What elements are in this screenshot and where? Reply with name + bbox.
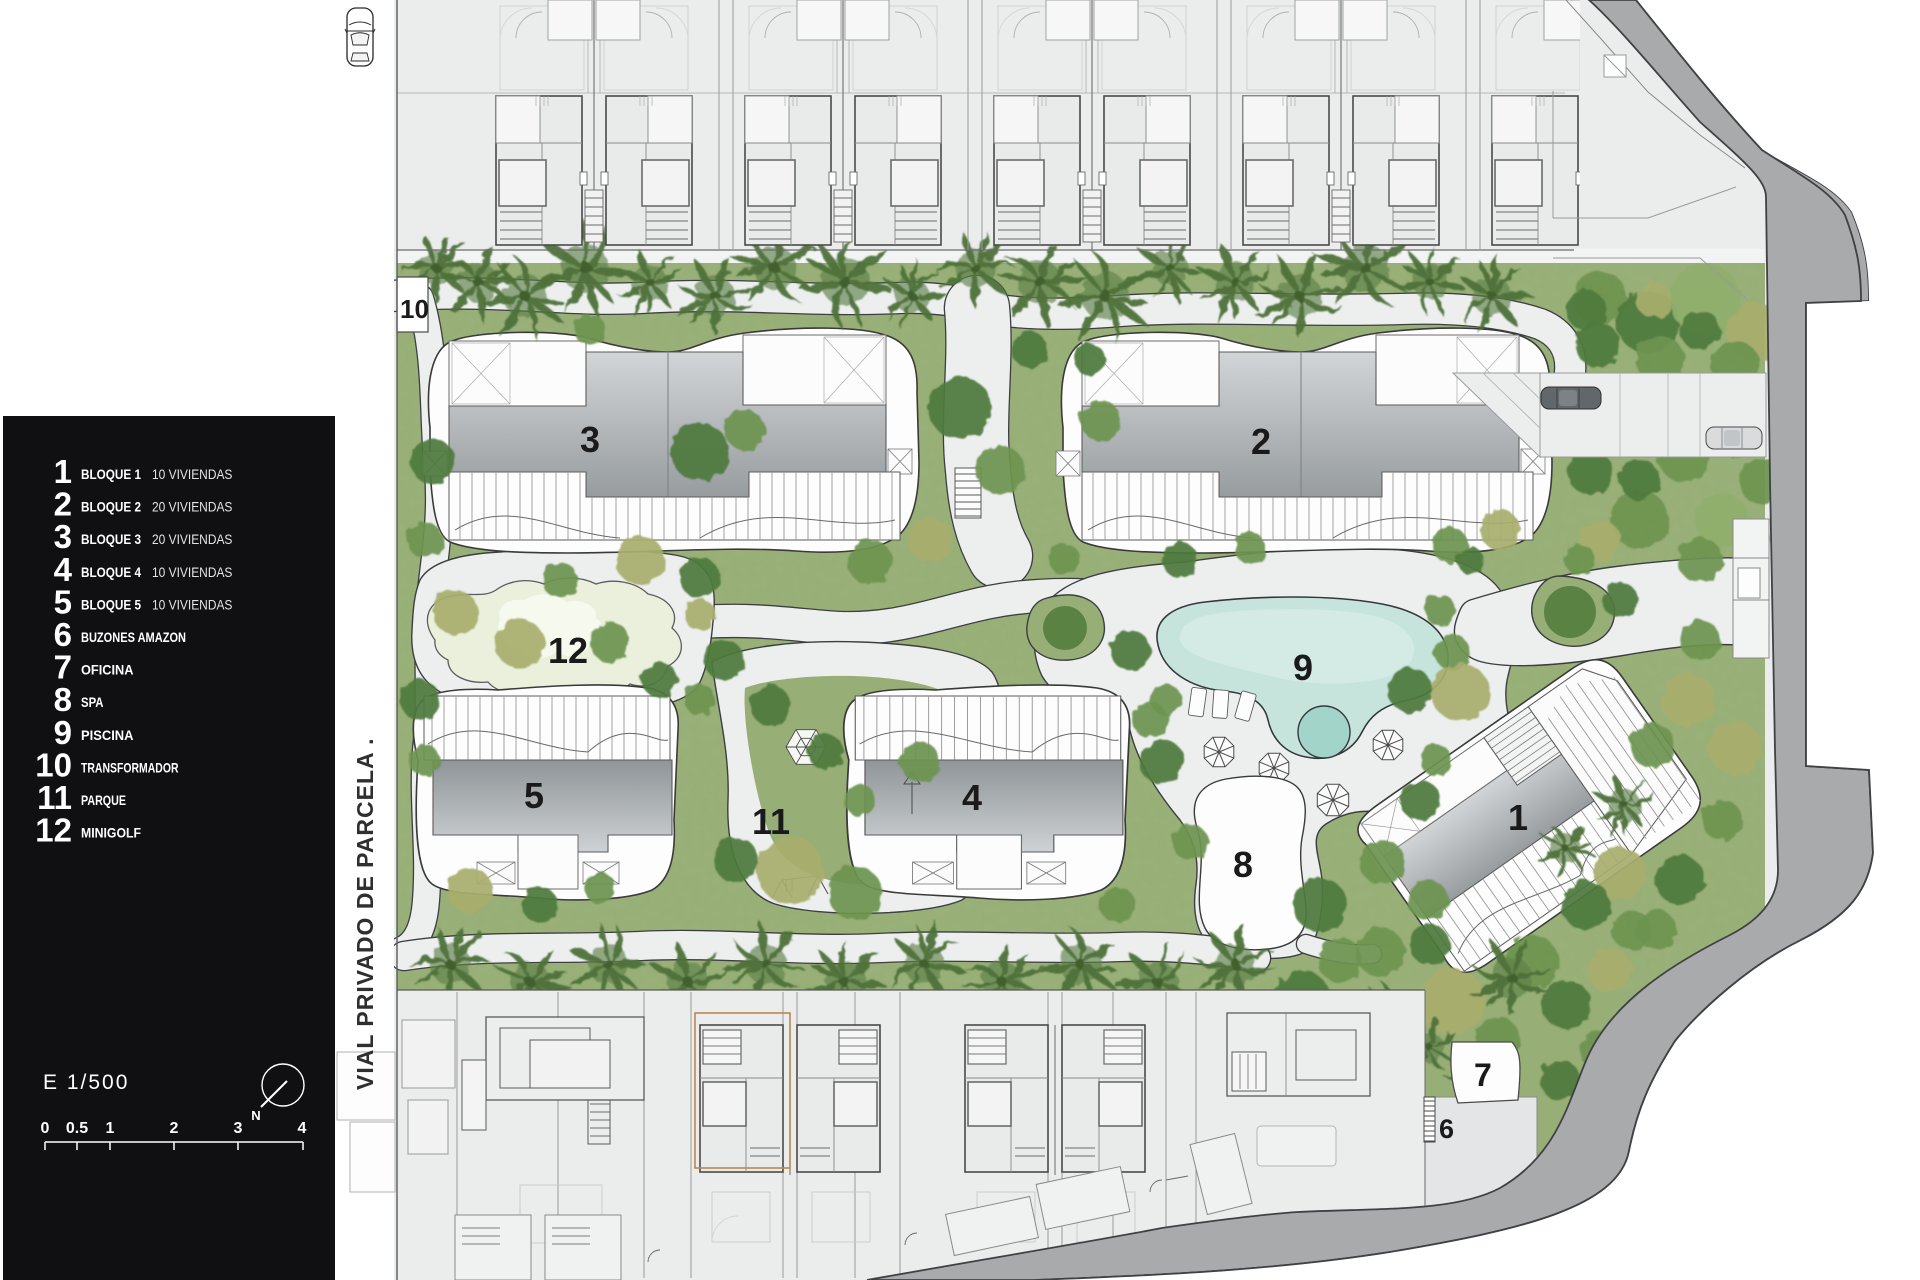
svg-text:0.5: 0.5 xyxy=(66,1120,88,1137)
svg-text:6: 6 xyxy=(54,616,72,653)
svg-text:4: 4 xyxy=(962,777,982,818)
svg-text:10 VIVIENDAS: 10 VIVIENDAS xyxy=(152,596,232,612)
svg-text:1: 1 xyxy=(1508,797,1528,838)
svg-text:9: 9 xyxy=(1293,647,1313,688)
svg-text:1: 1 xyxy=(54,453,72,490)
svg-text:3: 3 xyxy=(234,1120,243,1137)
svg-text:2: 2 xyxy=(170,1120,179,1137)
svg-text:12: 12 xyxy=(35,812,72,849)
svg-text:4: 4 xyxy=(298,1120,307,1137)
svg-text:MINIGOLF: MINIGOLF xyxy=(81,825,141,841)
svg-text:11: 11 xyxy=(752,801,790,842)
svg-text:2: 2 xyxy=(1251,421,1271,462)
svg-text:3: 3 xyxy=(580,419,600,460)
svg-text:N: N xyxy=(251,1108,260,1123)
svg-text:BUZONES AMAZON: BUZONES AMAZON xyxy=(81,629,186,645)
svg-text:E 1/500: E 1/500 xyxy=(43,1071,129,1094)
svg-text:SPA: SPA xyxy=(81,694,104,710)
svg-text:VIAL PRIVADO DE PARCELA .: VIAL PRIVADO DE PARCELA . xyxy=(352,737,378,1090)
svg-text:10 VIVIENDAS: 10 VIVIENDAS xyxy=(152,564,232,580)
svg-text:TRANSFORMADOR: TRANSFORMADOR xyxy=(81,759,179,775)
svg-text:BLOQUE 4: BLOQUE 4 xyxy=(81,564,141,580)
svg-text:4: 4 xyxy=(54,551,73,588)
svg-text:7: 7 xyxy=(1474,1057,1492,1093)
svg-text:0: 0 xyxy=(41,1120,50,1137)
svg-text:7: 7 xyxy=(54,649,72,686)
svg-text:10: 10 xyxy=(35,746,72,783)
svg-text:2: 2 xyxy=(54,486,72,523)
svg-text:PARQUE: PARQUE xyxy=(81,792,126,808)
svg-text:BLOQUE 5: BLOQUE 5 xyxy=(81,596,141,612)
svg-text:5: 5 xyxy=(524,775,544,816)
svg-text:9: 9 xyxy=(54,714,72,751)
svg-text:5: 5 xyxy=(54,583,72,620)
svg-text:BLOQUE 3: BLOQUE 3 xyxy=(81,531,141,547)
svg-text:BLOQUE 1: BLOQUE 1 xyxy=(81,466,141,482)
svg-text:BLOQUE 2: BLOQUE 2 xyxy=(81,499,141,515)
svg-text:10 VIVIENDAS: 10 VIVIENDAS xyxy=(152,466,232,482)
svg-text:10: 10 xyxy=(400,294,429,324)
svg-text:3: 3 xyxy=(54,518,72,555)
svg-text:20 VIVIENDAS: 20 VIVIENDAS xyxy=(152,531,232,547)
svg-text:6: 6 xyxy=(1439,1114,1454,1144)
svg-text:11: 11 xyxy=(37,779,72,816)
svg-text:OFICINA: OFICINA xyxy=(81,662,134,678)
svg-text:8: 8 xyxy=(1233,844,1253,885)
svg-text:12: 12 xyxy=(548,630,588,671)
svg-text:PISCINA: PISCINA xyxy=(81,727,134,743)
svg-text:20 VIVIENDAS: 20 VIVIENDAS xyxy=(152,499,232,515)
svg-text:1: 1 xyxy=(106,1120,115,1137)
svg-text:8: 8 xyxy=(54,681,72,718)
